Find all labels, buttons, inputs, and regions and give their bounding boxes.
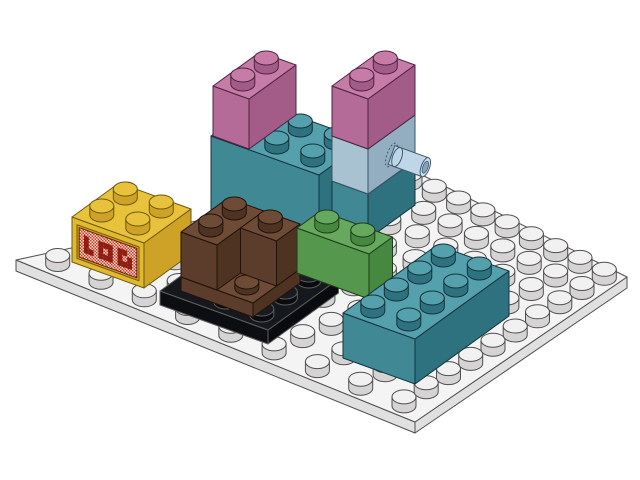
- lego-render-canvas: [0, 0, 640, 480]
- lego-scene: [0, 0, 640, 480]
